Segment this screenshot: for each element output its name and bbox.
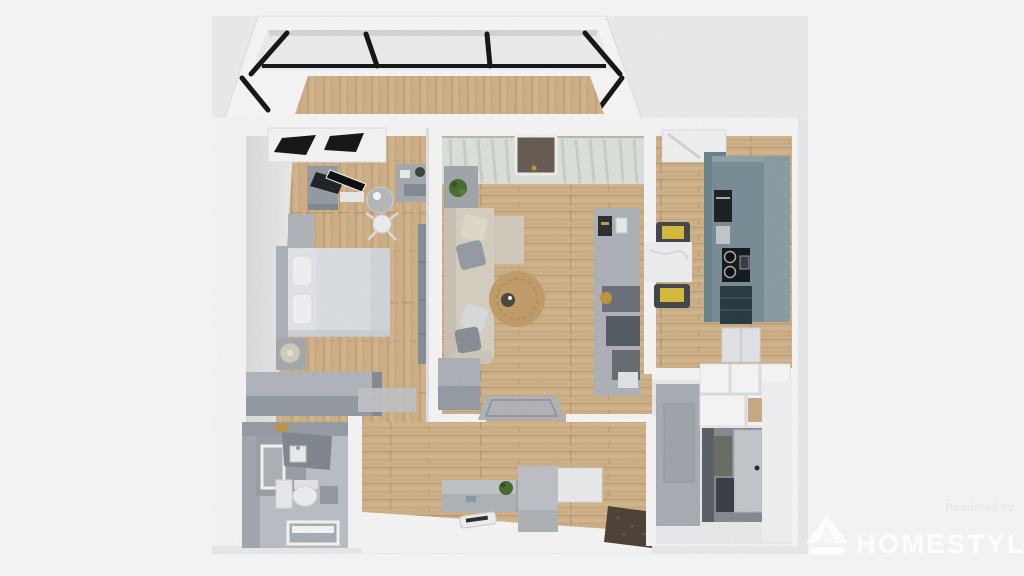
floorplan-render-canvas: Rendered by HOMESTYLER [0,0,1024,576]
watermark-brand: HOMESTYLER [856,529,1024,559]
render-grain [212,16,808,554]
floorplan-render: Rendered by HOMESTYLER [0,0,1024,576]
watermark-tagline: Rendered by [946,502,1015,514]
